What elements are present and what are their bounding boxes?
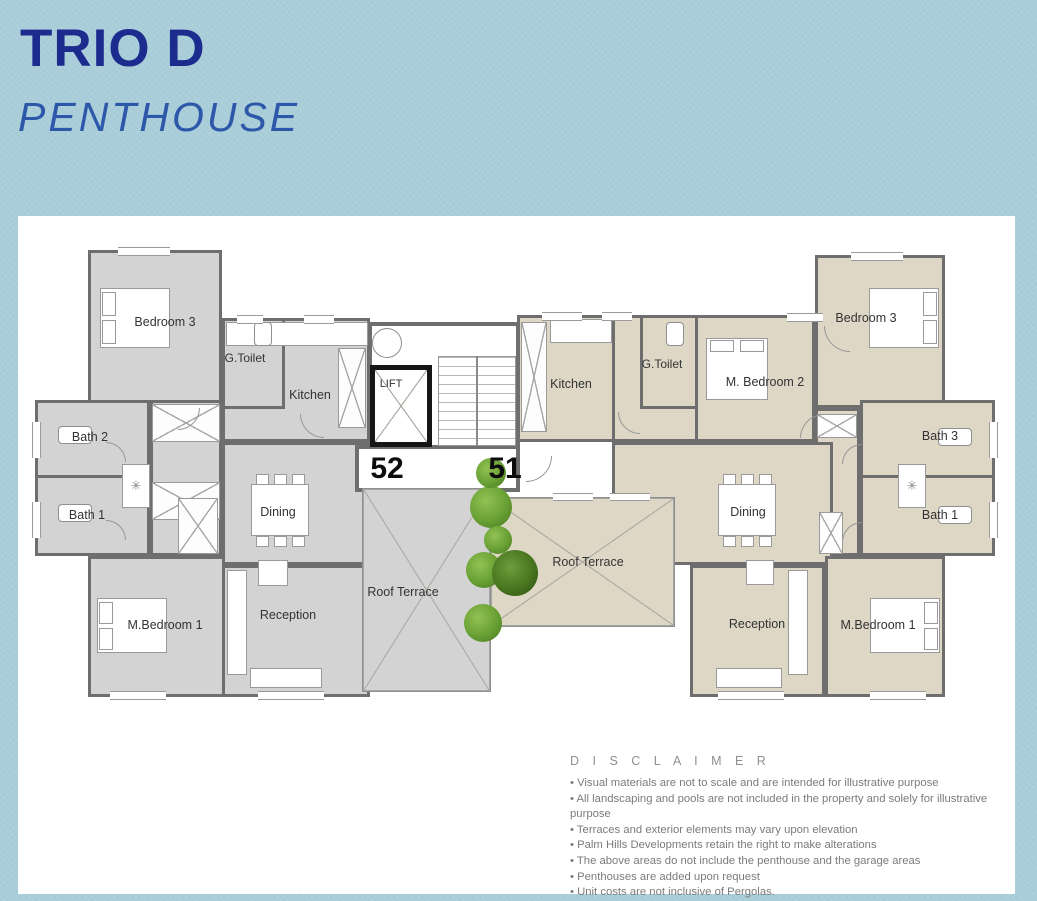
wall-partition bbox=[860, 475, 995, 478]
disclaimer-list: Visual materials are not to scale and ar… bbox=[570, 776, 1020, 901]
wall-partition bbox=[695, 315, 698, 442]
window bbox=[787, 313, 823, 322]
pillow bbox=[924, 628, 938, 650]
pillow bbox=[102, 292, 116, 316]
room-label-bedroom3-right: Bedroom 3 bbox=[835, 311, 896, 325]
window bbox=[602, 312, 632, 321]
disclaimer-block: D I S C L A I M E R Visual materials are… bbox=[570, 754, 1020, 901]
room-label-bath1-left: Bath 1 bbox=[69, 508, 105, 522]
wall-partition bbox=[612, 315, 615, 442]
chair bbox=[759, 536, 772, 547]
pillow bbox=[99, 628, 113, 650]
lift-label: LIFT bbox=[380, 378, 403, 390]
disclaimer-item: Terraces and exterior elements may vary … bbox=[570, 823, 1020, 839]
disclaimer-item: Visual materials are not to scale and ar… bbox=[570, 776, 1020, 792]
chair bbox=[723, 536, 736, 547]
sofa bbox=[250, 668, 322, 688]
room-label-gtoilet-right: G.Toilet bbox=[642, 357, 683, 371]
window bbox=[610, 493, 650, 501]
window bbox=[718, 691, 784, 700]
plant-icon bbox=[464, 604, 502, 642]
room-label-bath3-right: Bath 3 bbox=[922, 429, 958, 443]
room-label-mbedroom1-left: M.Bedroom 1 bbox=[127, 618, 202, 632]
laundry-icon: ✳ bbox=[907, 478, 918, 494]
room-label-reception-left: Reception bbox=[260, 608, 316, 622]
pillow bbox=[740, 340, 764, 352]
room-label-mbedroom2-right: M. Bedroom 2 bbox=[726, 375, 805, 389]
chair bbox=[274, 536, 287, 547]
coffee-table bbox=[746, 560, 774, 585]
room-label-dining-left: Dining bbox=[260, 505, 295, 519]
plant-icon bbox=[470, 486, 512, 528]
disclaimer-item: All landscaping and pools are not includ… bbox=[570, 792, 1020, 823]
pillow bbox=[710, 340, 734, 352]
kitchen-wardrobe bbox=[521, 322, 547, 432]
pillow bbox=[923, 292, 937, 316]
window bbox=[989, 422, 998, 458]
pillow bbox=[99, 602, 113, 624]
window bbox=[32, 502, 41, 538]
room-label-mbedroom1-right: M.Bedroom 1 bbox=[840, 618, 915, 632]
room-baths-wing-right bbox=[860, 400, 995, 556]
page-subtitle: PENTHOUSE bbox=[18, 94, 300, 141]
chair bbox=[274, 474, 287, 485]
sofa bbox=[788, 570, 808, 675]
disclaimer-item: The above areas do not include the penth… bbox=[570, 854, 1020, 870]
room-label-bedroom3-left: Bedroom 3 bbox=[134, 315, 195, 329]
kitchen-wardrobe bbox=[338, 348, 366, 428]
unit-number-51: 51 bbox=[488, 452, 521, 486]
disclaimer-item: Palm Hills Developments retain the right… bbox=[570, 838, 1020, 854]
window bbox=[542, 312, 582, 321]
shaft-circle bbox=[372, 328, 402, 358]
wall-partition bbox=[222, 406, 285, 409]
sofa bbox=[227, 570, 247, 675]
window bbox=[237, 315, 263, 324]
plant-icon bbox=[492, 550, 538, 596]
window bbox=[851, 252, 903, 261]
door-arc bbox=[526, 456, 552, 482]
wall-partition bbox=[640, 406, 698, 409]
chair bbox=[256, 536, 269, 547]
disclaimer-title: D I S C L A I M E R bbox=[570, 754, 1020, 768]
coffee-table bbox=[258, 560, 288, 586]
plant-icon bbox=[484, 526, 512, 554]
room-label-kitchen-right: Kitchen bbox=[550, 377, 592, 391]
room-label-kitchen-left: Kitchen bbox=[289, 388, 331, 402]
page-title: TRIO D bbox=[20, 18, 206, 79]
window bbox=[304, 315, 334, 324]
stair-stringer bbox=[476, 356, 478, 446]
window bbox=[989, 502, 998, 538]
room-label-bath1-right: Bath 1 bbox=[922, 508, 958, 522]
window bbox=[110, 691, 166, 700]
chair bbox=[759, 474, 772, 485]
window bbox=[258, 691, 324, 700]
room-label-reception-right: Reception bbox=[729, 617, 785, 631]
window bbox=[32, 422, 41, 458]
pillow bbox=[924, 602, 938, 624]
closet bbox=[178, 498, 218, 554]
window bbox=[118, 247, 170, 256]
page: { "header": { "title": "TRIO D", "subtit… bbox=[0, 0, 1037, 894]
floor-plan-card: ✳ ✳ Bedroom 3 G.Toilet Kitchen Bath 2 Ba… bbox=[18, 216, 1015, 894]
closet bbox=[819, 512, 843, 554]
room-label-gtoilet-left: G.Toilet bbox=[225, 351, 266, 365]
window bbox=[870, 691, 926, 700]
disclaimer-item: Unit costs are not inclusive of Pergolas… bbox=[570, 885, 1020, 901]
chair bbox=[723, 474, 736, 485]
room-label-roof-terrace-right: Roof Terrace bbox=[552, 555, 623, 569]
chair bbox=[741, 474, 754, 485]
disclaimer-item: Penthouses are added upon request bbox=[570, 870, 1020, 886]
window bbox=[553, 493, 593, 501]
chair bbox=[741, 536, 754, 547]
pillow bbox=[102, 320, 116, 344]
room-label-roof-terrace-left: Roof Terrace bbox=[367, 585, 438, 599]
laundry-icon: ✳ bbox=[131, 478, 142, 494]
kitchen-counter bbox=[550, 319, 612, 343]
pillow bbox=[923, 320, 937, 344]
room-label-bath2-left: Bath 2 bbox=[72, 430, 108, 444]
chair bbox=[292, 474, 305, 485]
kitchen-counter bbox=[226, 322, 368, 346]
toilet-icon bbox=[666, 322, 684, 346]
unit-number-52: 52 bbox=[370, 452, 403, 486]
toilet-icon bbox=[254, 322, 272, 346]
sofa bbox=[716, 668, 782, 688]
room-label-dining-right: Dining bbox=[730, 505, 765, 519]
chair bbox=[292, 536, 305, 547]
chair bbox=[256, 474, 269, 485]
